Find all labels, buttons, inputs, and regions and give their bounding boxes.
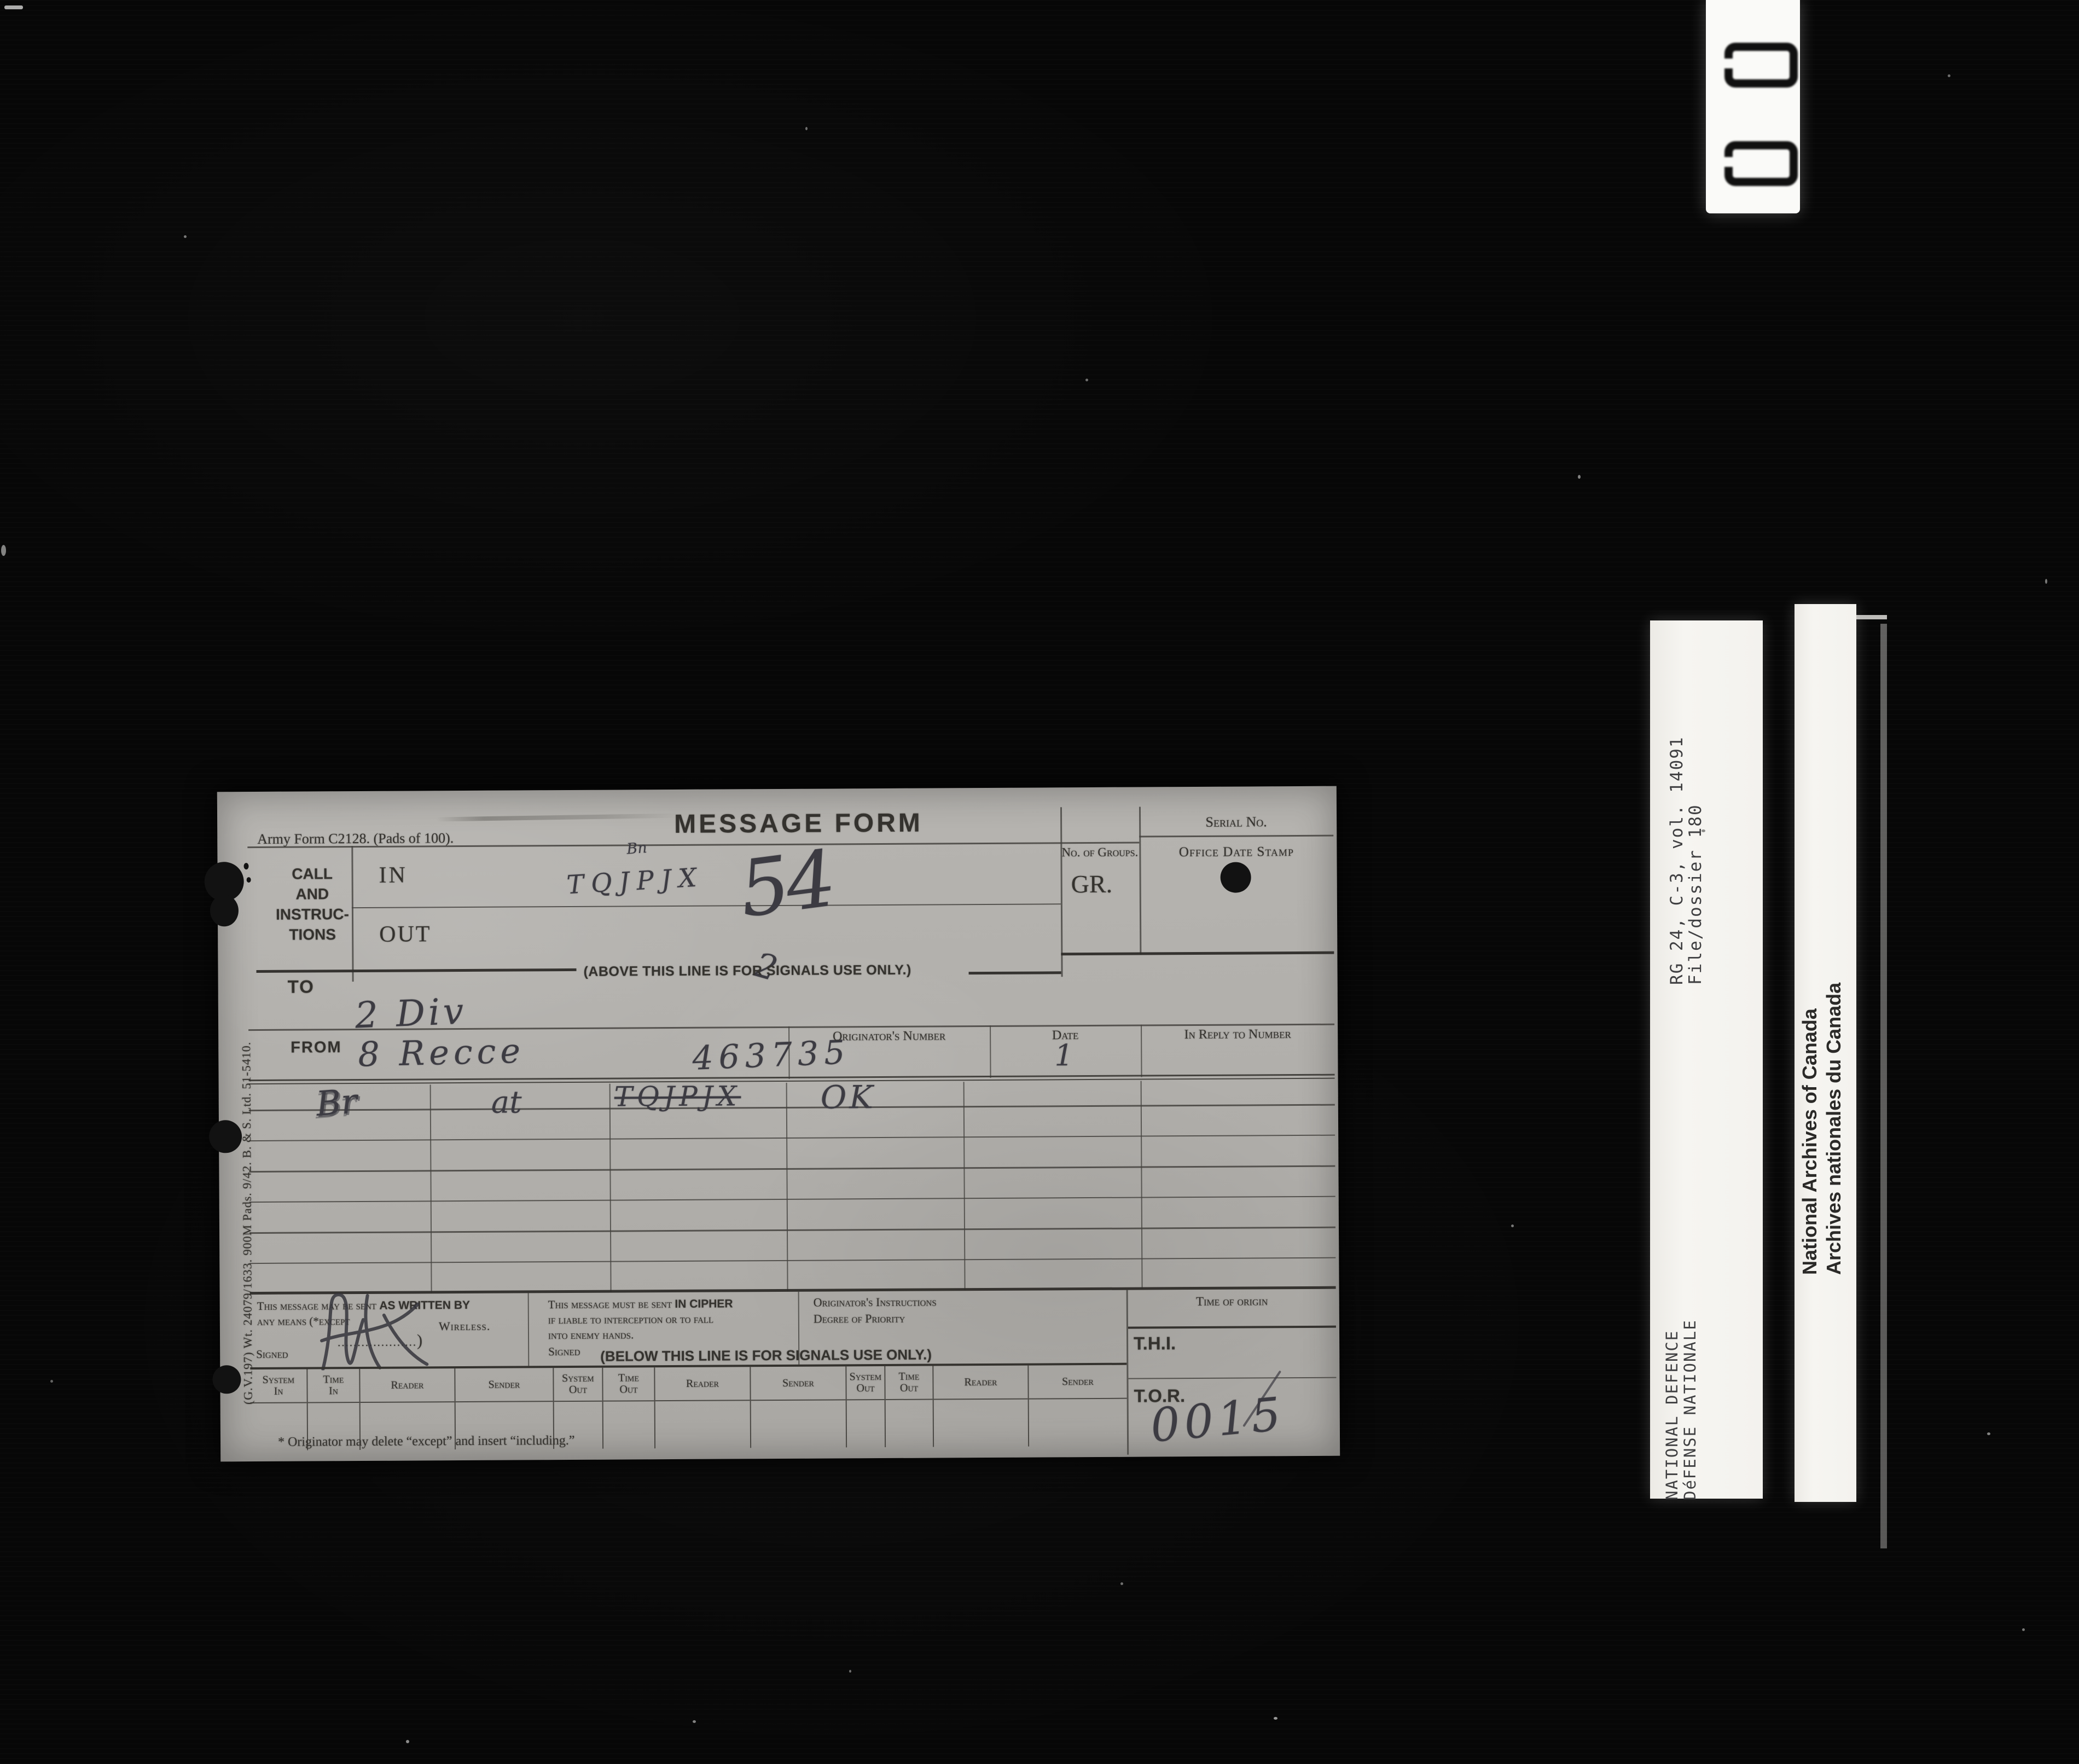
originators-number-label: Originator's Number	[788, 1029, 990, 1045]
punch-blot-top-lobe	[210, 895, 239, 926]
ink-fleck-1	[243, 863, 248, 869]
to-label: TO	[288, 976, 315, 997]
dust-speck	[1511, 1225, 1514, 1227]
dust-speck	[693, 1720, 696, 1723]
thi-rule	[1128, 1326, 1336, 1329]
in-out-divider	[352, 903, 1061, 908]
handwritten-group-count: 54	[735, 834, 838, 935]
dust-speck	[1578, 475, 1581, 479]
page-title: MESSAGE FORM	[674, 808, 923, 839]
pencil-smudge	[436, 814, 677, 822]
reference-strip: RG 24, C-3, vol. 14091 File/dossier 180 …	[1650, 620, 1763, 1499]
grid-row-line-4	[249, 1196, 1335, 1203]
punch-hole-middle	[209, 1120, 242, 1153]
archives-text: National Archives of Canada Archives nat…	[1798, 832, 1846, 1275]
dust-speck	[4, 5, 23, 9]
strip-speck	[1701, 829, 1705, 832]
signals-line-left	[257, 968, 577, 973]
signature-scrawl	[302, 1287, 483, 1371]
signals-line-right	[969, 971, 1061, 974]
printers-code: (G.V.197) Wt. 24079/1633. 900M Pads. 9/4…	[239, 972, 255, 1405]
cipher-note-signed: Signed	[548, 1345, 580, 1359]
call-in-label: IN	[379, 862, 408, 889]
message-form-document: Army Form C2128. (Pads of 100). MESSAGE …	[217, 786, 1340, 1462]
no-of-groups-label: No. of Groups.	[1060, 845, 1139, 860]
office-date-stamp-label: Office Date Stamp	[1139, 844, 1333, 861]
handwritten-msg-col2: at	[491, 1084, 522, 1120]
counter-digit-zero-1	[1724, 43, 1798, 88]
grid-row-line-6	[249, 1257, 1335, 1264]
handwritten-date: 1	[1054, 1038, 1073, 1072]
serial-underline	[1139, 835, 1333, 838]
film-edge-sliver	[1880, 624, 1887, 1548]
handwritten-from-unit: 8 Recce	[358, 1031, 525, 1075]
signal-col-time-out-1: TimeOut	[603, 1367, 655, 1448]
band-divider-1	[528, 1293, 530, 1366]
serial-no-label: Serial No.	[1139, 814, 1333, 831]
thi-label: T.H.I.	[1134, 1333, 1176, 1354]
dust-speck	[2045, 579, 2047, 584]
cipher-note-line1: This message must be sent IN CIPHER	[548, 1297, 733, 1312]
signal-col-sender-3: Sender	[1029, 1365, 1127, 1447]
dust-speck	[406, 1740, 409, 1743]
dust-speck	[849, 1670, 851, 1673]
call-out-label: OUT	[379, 921, 432, 947]
below-line-note: (BELOW THIS LINE IS FOR SIGNALS USE ONLY…	[600, 1347, 932, 1365]
dust-speck	[1, 545, 6, 556]
tor-rule	[1128, 1377, 1336, 1379]
signal-col-reader-2: Reader	[655, 1367, 751, 1448]
dust-speck	[1120, 1582, 1123, 1585]
dust-speck	[1948, 74, 1950, 77]
archival-reference-text: RG 24, C-3, vol. 14091 File/dossier 180	[1668, 662, 1705, 985]
handwritten-msg-col3-struck: TQJPJX	[614, 1080, 741, 1112]
form-number: Army Form C2128. (Pads of 100).	[257, 830, 454, 848]
above-line-note: (ABOVE THIS LINE IS FOR SIGNALS USE ONLY…	[583, 962, 911, 980]
dust-speck	[184, 235, 187, 238]
frame-counter-tab	[1706, 0, 1800, 213]
handwritten-msg-col4: OK	[821, 1078, 876, 1116]
dust-speck	[1274, 1717, 1277, 1720]
grid-row-line-1	[249, 1104, 1335, 1111]
dust-speck	[2022, 1628, 2025, 1631]
gr-label: GR.	[1071, 869, 1113, 898]
archives-strip: National Archives of Canada Archives nat…	[1795, 604, 1856, 1502]
dust-speck	[805, 127, 808, 130]
signal-col-system-out-2: SystemOut	[846, 1366, 886, 1447]
cipher-note-line2: if liable to interception or to fall	[548, 1313, 713, 1327]
dust-speck	[50, 1380, 53, 1383]
grid-row-line-5	[249, 1227, 1335, 1234]
signal-col-time-out-2: TimeOut	[885, 1366, 934, 1447]
groups-cell-divider	[1060, 807, 1063, 977]
time-of-origin-label: Time of origin	[1128, 1294, 1336, 1309]
date-stamp-bottom-rule	[1061, 951, 1334, 956]
handwritten-msg-col1: Br	[315, 1081, 358, 1124]
punch-hole-date-stamp	[1221, 862, 1251, 892]
call-instructions-label: CALL AND INSTRUC- TIONS	[272, 863, 352, 945]
ink-fleck-2	[247, 877, 251, 883]
cipher-note-line3: into enemy hands.	[548, 1328, 634, 1342]
grid-row-line-3	[249, 1165, 1335, 1173]
department-text: NATIONAL DEFENCE DéFENSE NATIONALE	[1663, 1268, 1699, 1500]
signal-col-sender-2: Sender	[751, 1366, 847, 1448]
originator-instructions-line1: Originator's Instructions	[814, 1295, 937, 1309]
written-note-signed: Signed	[256, 1348, 288, 1361]
originator-instructions-line2: Degree of Priority	[814, 1312, 905, 1326]
footnote: * Originator may delete “except” and ins…	[278, 1434, 575, 1450]
from-label: FROM	[291, 1038, 342, 1057]
from-row-double-rule	[249, 1074, 1335, 1084]
counter-digit-zero-2	[1724, 141, 1798, 186]
punch-hole-bottom	[212, 1365, 241, 1394]
dust-speck	[1085, 379, 1088, 381]
in-reply-label: In Reply to Number	[1141, 1027, 1334, 1043]
handwritten-call-sign-in: TQJPJX	[566, 862, 704, 900]
strip-edge-tick	[1856, 615, 1887, 619]
handwritten-station-note: Bn	[626, 839, 647, 858]
dust-speck	[1987, 1432, 1990, 1435]
signal-col-reader-3: Reader	[933, 1366, 1029, 1447]
grid-row-line-2	[249, 1135, 1335, 1141]
